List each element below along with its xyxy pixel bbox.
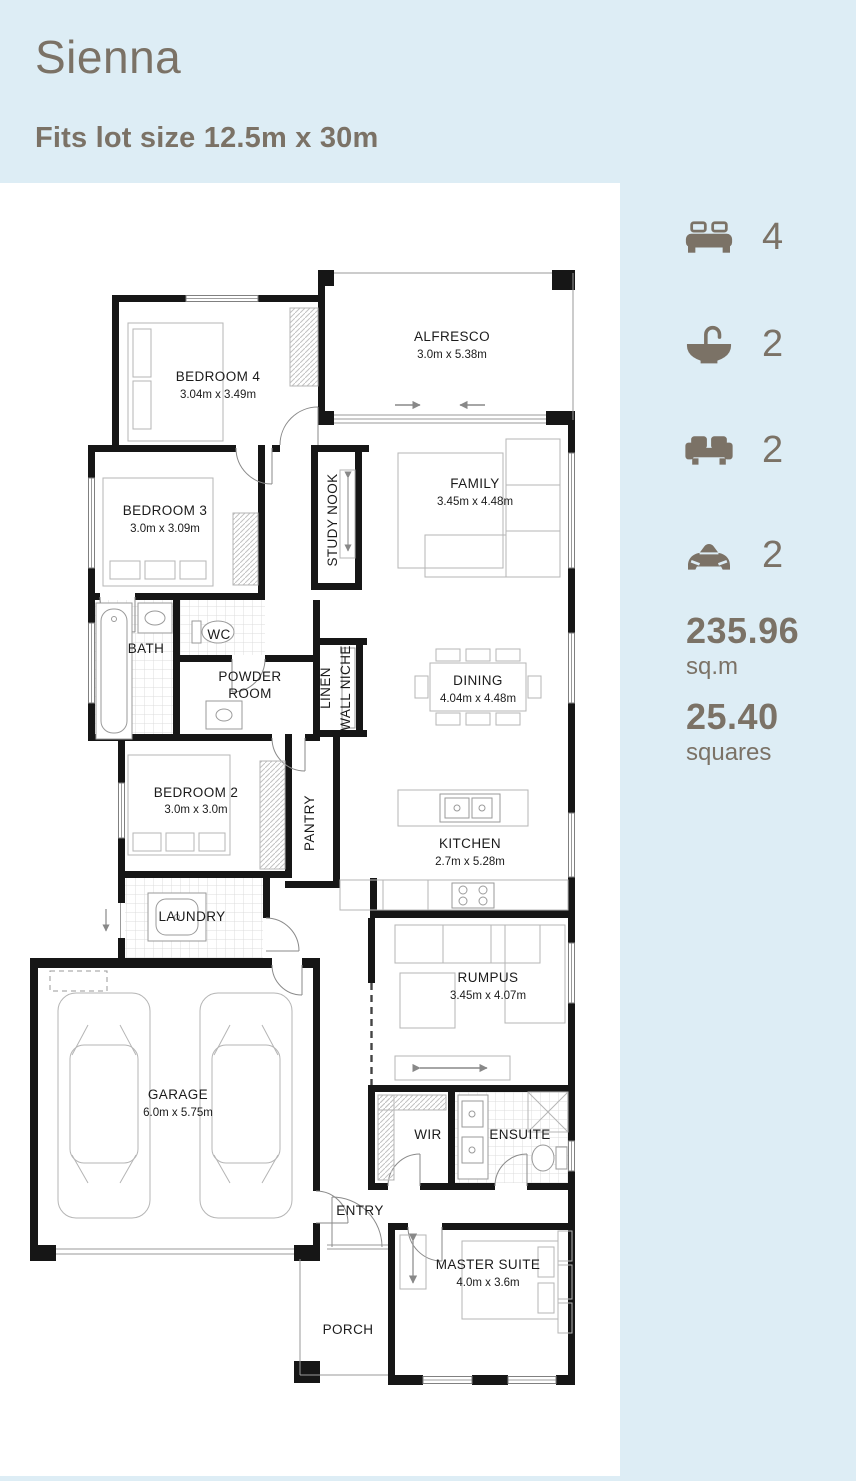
area-value: 235.96 bbox=[686, 612, 799, 650]
stat-bedrooms: 4 bbox=[684, 216, 783, 259]
cars-count: 2 bbox=[762, 534, 783, 577]
room-label-bath: BATH bbox=[128, 641, 165, 656]
squares-unit: squares bbox=[686, 740, 779, 765]
lot-size-subtitle: Fits lot size 12.5m x 30m bbox=[35, 122, 378, 155]
room-label-laundry: LAUNDRY bbox=[158, 909, 225, 924]
room-label-pantry: PANTRY bbox=[302, 795, 317, 851]
room-dims-dining: 4.04m x 4.48m bbox=[440, 693, 516, 705]
car-icon bbox=[684, 535, 734, 577]
floor-plan: BEDROOM 4 3.04m x 3.49m ALFRESCO 3.0m x … bbox=[0, 183, 620, 1476]
stat-living: 2 bbox=[684, 429, 783, 472]
room-label-dining: DINING bbox=[453, 673, 503, 688]
sofa-icon bbox=[684, 430, 734, 472]
room-label-porch: PORCH bbox=[323, 1322, 374, 1337]
room-label-garage: GARAGE bbox=[148, 1087, 208, 1102]
rumpus-sofa bbox=[395, 925, 565, 1080]
stat-cars: 2 bbox=[684, 534, 783, 577]
room-label-study-nook: STUDY NOOK bbox=[325, 473, 340, 566]
bed-icon bbox=[684, 217, 734, 259]
room-dims-kitchen: 2.7m x 5.28m bbox=[435, 856, 505, 868]
powder-vanity bbox=[206, 701, 242, 729]
room-label-rumpus: RUMPUS bbox=[458, 970, 519, 985]
room-label-entry: ENTRY bbox=[336, 1203, 384, 1218]
room-label-wir: WIR bbox=[414, 1127, 441, 1142]
bath-icon bbox=[684, 324, 734, 366]
living-count: 2 bbox=[762, 429, 783, 472]
study-nook-desk bbox=[340, 470, 355, 558]
room-label-kitchen: KITCHEN bbox=[439, 836, 501, 851]
room-dims-garage: 6.0m x 5.75m bbox=[143, 1107, 213, 1119]
room-label-family: FAMILY bbox=[450, 476, 499, 491]
area-unit: sq.m bbox=[686, 654, 799, 679]
bedrooms-count: 4 bbox=[762, 216, 783, 259]
room-label-ensuite: ENSUITE bbox=[489, 1127, 550, 1142]
room-label-bedroom-4: BEDROOM 4 bbox=[176, 369, 261, 384]
stat-squares: 25.40 squares bbox=[686, 698, 779, 765]
car-1 bbox=[58, 993, 150, 1218]
room-dims-family: 3.45m x 4.48m bbox=[437, 496, 513, 508]
room-dims-bedroom-3: 3.0m x 3.09m bbox=[130, 523, 200, 535]
room-label-alfresco: ALFRESCO bbox=[414, 329, 490, 344]
family-sofa bbox=[398, 439, 560, 577]
stat-area: 235.96 sq.m bbox=[686, 612, 799, 679]
room-dims-bedroom-4: 3.04m x 3.49m bbox=[180, 389, 256, 401]
room-dims-bedroom-2: 3.0m x 3.0m bbox=[164, 804, 227, 816]
room-dims-master-suite: 4.0m x 3.6m bbox=[456, 1277, 519, 1289]
room-label-wc: WC bbox=[207, 627, 230, 642]
stat-bathrooms: 2 bbox=[684, 323, 783, 366]
page-title: Sienna bbox=[35, 30, 181, 84]
room-label-linen: LINEN bbox=[318, 667, 333, 709]
car-2 bbox=[200, 993, 292, 1218]
room-dims-rumpus: 3.45m x 4.07m bbox=[450, 990, 526, 1002]
squares-value: 25.40 bbox=[686, 698, 779, 736]
room-dims-alfresco: 3.0m x 5.38m bbox=[417, 349, 487, 361]
room-label-powder-line2: ROOM bbox=[228, 686, 272, 701]
room-label-powder-line1: POWDER bbox=[218, 669, 281, 684]
room-label-master-suite: MASTER SUITE bbox=[436, 1257, 541, 1272]
floor-plan-panel: BEDROOM 4 3.04m x 3.49m ALFRESCO 3.0m x … bbox=[0, 183, 620, 1476]
room-label-bedroom-2: BEDROOM 2 bbox=[154, 785, 239, 800]
room-label-bedroom-3: BEDROOM 3 bbox=[123, 503, 208, 518]
room-label-wall-niche: WALL NICHE bbox=[338, 645, 353, 731]
bathrooms-count: 2 bbox=[762, 323, 783, 366]
